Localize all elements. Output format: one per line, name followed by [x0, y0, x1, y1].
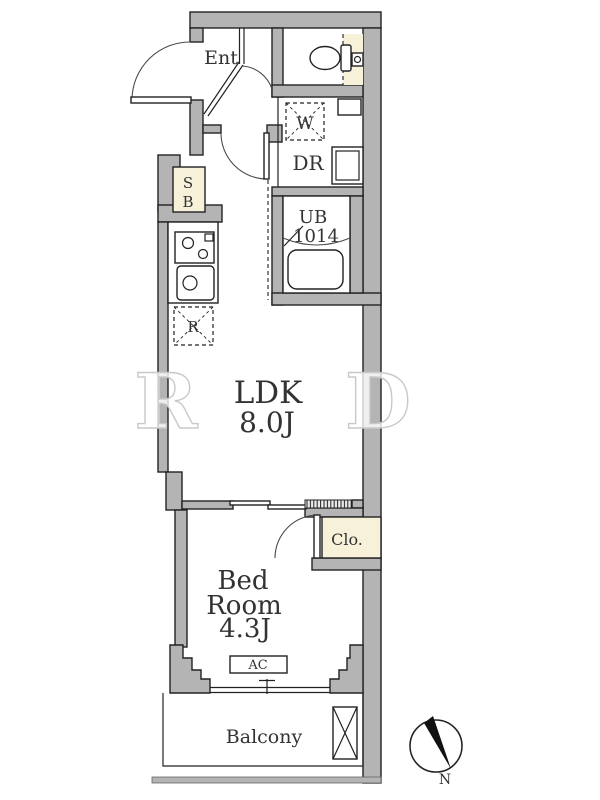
ldk-size-label: 8.0J	[239, 406, 295, 439]
shoe-box-label-b: B	[182, 193, 193, 211]
floor-plan-page: N Ent W DR UB 1014 S B R LDK 8.0J Clo. B…	[0, 0, 600, 800]
shelf-box	[338, 99, 361, 115]
site-boundary-bar	[152, 777, 381, 783]
entry-door-leaf	[131, 97, 191, 103]
wall-partition-right	[352, 500, 363, 508]
floor-plan-drawing: N Ent W DR UB 1014 S B R LDK 8.0J Clo. B…	[0, 0, 600, 800]
compass-north-label: N	[439, 772, 451, 788]
wall-entry-left-lower	[190, 100, 203, 155]
wall-partition-stub	[182, 501, 233, 509]
unit-bath-label: UB	[299, 207, 327, 228]
sliding-panel-2	[268, 505, 306, 509]
wall-left-bedroom	[175, 510, 187, 647]
bathtub	[288, 250, 343, 289]
sliding-panel-1	[230, 501, 270, 505]
wall-toilet-bottom	[272, 85, 363, 97]
wall-left-step	[166, 472, 182, 510]
wall-bath-top	[272, 187, 363, 196]
wall-bath-bottom	[272, 293, 381, 305]
toilet-bowl	[310, 47, 340, 70]
closet-door-leaf	[314, 515, 320, 558]
wall-under-closet	[312, 558, 381, 570]
balcony-label: Balcony	[226, 726, 303, 748]
wall-hall-top-left	[203, 125, 221, 133]
watermark-letter-right: D	[345, 357, 411, 446]
ac-label: AC	[247, 658, 267, 673]
washer-label: W	[296, 114, 314, 134]
stove	[175, 232, 214, 263]
wall-bath-right	[350, 196, 363, 293]
wall-entry-left-upper	[190, 28, 203, 42]
hall-door-leaf	[264, 133, 269, 179]
toilet-hand-basin	[352, 53, 363, 66]
washbasin	[332, 147, 363, 184]
closet-label: Clo.	[331, 530, 363, 549]
dressing-room-label: DR	[292, 151, 324, 175]
unit-bath-size: 1014	[293, 226, 339, 247]
entrance-label: Ent	[204, 47, 238, 69]
wall-bath-left	[272, 196, 283, 305]
shoe-box-label-s: S	[183, 174, 193, 192]
accordion-rail	[305, 500, 352, 508]
bedroom-size-label: 4.3J	[219, 614, 271, 644]
wall-top	[190, 12, 381, 28]
compass: N	[410, 716, 462, 788]
fridge-label: R	[187, 318, 199, 336]
toilet-tank	[341, 45, 351, 71]
watermark-letter-left: R	[134, 357, 198, 446]
